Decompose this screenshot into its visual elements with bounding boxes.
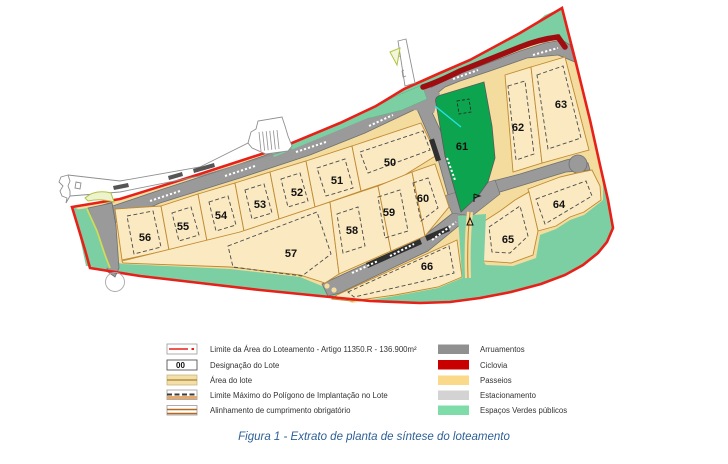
svg-text:50: 50 [384, 157, 396, 169]
svg-text:66: 66 [421, 261, 433, 273]
svg-text:54: 54 [215, 210, 228, 222]
svg-text:64: 64 [553, 199, 566, 211]
svg-text:59: 59 [383, 207, 395, 219]
svg-text:58: 58 [346, 225, 358, 237]
svg-text:Limite da Área do Loteamento -: Limite da Área do Loteamento - Artigo 11… [210, 345, 417, 354]
svg-text:55: 55 [177, 221, 189, 233]
svg-text:Ciclovia: Ciclovia [480, 361, 508, 370]
svg-text:Designação do Lote: Designação do Lote [210, 361, 279, 370]
svg-text:62: 62 [512, 122, 524, 134]
svg-text:56: 56 [139, 232, 151, 244]
svg-text:Estacionamento: Estacionamento [480, 391, 537, 400]
svg-text:53: 53 [254, 199, 266, 211]
svg-text:51: 51 [331, 175, 343, 187]
svg-text:57: 57 [285, 248, 297, 260]
svg-text:60: 60 [417, 193, 429, 205]
svg-text:Alinhamento de cumprimento obr: Alinhamento de cumprimento obrigatório [210, 406, 351, 415]
svg-text:Espaços Verdes públicos: Espaços Verdes públicos [480, 406, 567, 415]
svg-text:Área do lote: Área do lote [210, 376, 252, 385]
svg-text:Passeios: Passeios [480, 376, 512, 385]
svg-text:00: 00 [176, 361, 185, 370]
svg-text:Figura 1 - Extrato de planta d: Figura 1 - Extrato de planta de síntese … [238, 431, 510, 443]
svg-text:65: 65 [502, 234, 514, 246]
svg-text:Arruamentos: Arruamentos [480, 345, 525, 354]
svg-text:63: 63 [555, 99, 567, 111]
svg-text:52: 52 [291, 187, 303, 199]
svg-text:Limite Máximo do Polígono de I: Limite Máximo do Polígono de Implantação… [210, 391, 388, 400]
svg-text:61: 61 [456, 141, 468, 153]
